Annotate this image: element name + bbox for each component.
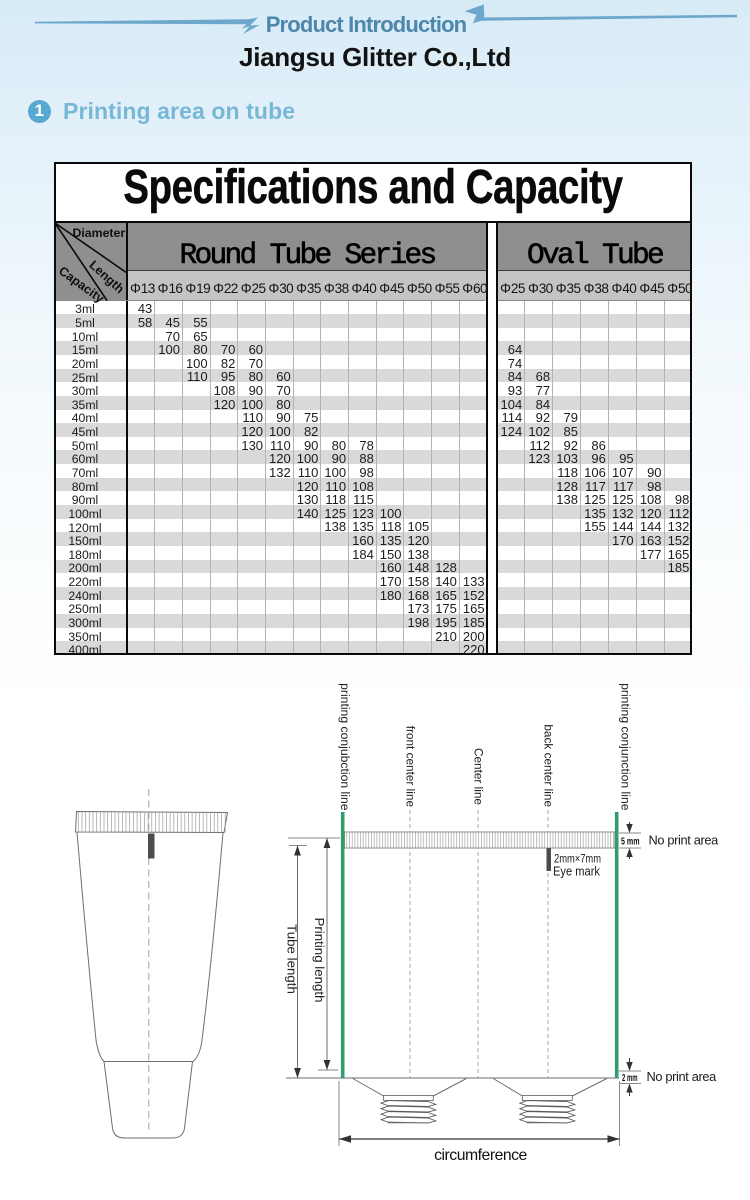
- svg-text:No print area: No print area: [649, 833, 720, 848]
- svg-text:back center line: back center line: [541, 724, 555, 807]
- svg-text:5 mm: 5 mm: [621, 836, 640, 848]
- svg-text:Eye mark: Eye mark: [553, 863, 600, 878]
- svg-text:front center line: front center line: [403, 726, 417, 808]
- svg-text:Center line: Center line: [471, 748, 485, 805]
- svg-text:printing conjunction line: printing conjunction line: [619, 683, 633, 811]
- svg-text:2 mm: 2 mm: [622, 1073, 638, 1084]
- svg-text:No print area: No print area: [647, 1069, 718, 1084]
- svg-text:Printing length: Printing length: [312, 917, 327, 1002]
- svg-text:Tube length: Tube length: [284, 924, 299, 994]
- svg-text:printing conjubction line: printing conjubction line: [338, 683, 352, 811]
- svg-text:circumference: circumference: [434, 1147, 527, 1164]
- svg-text:Diameter: Diameter: [73, 226, 126, 240]
